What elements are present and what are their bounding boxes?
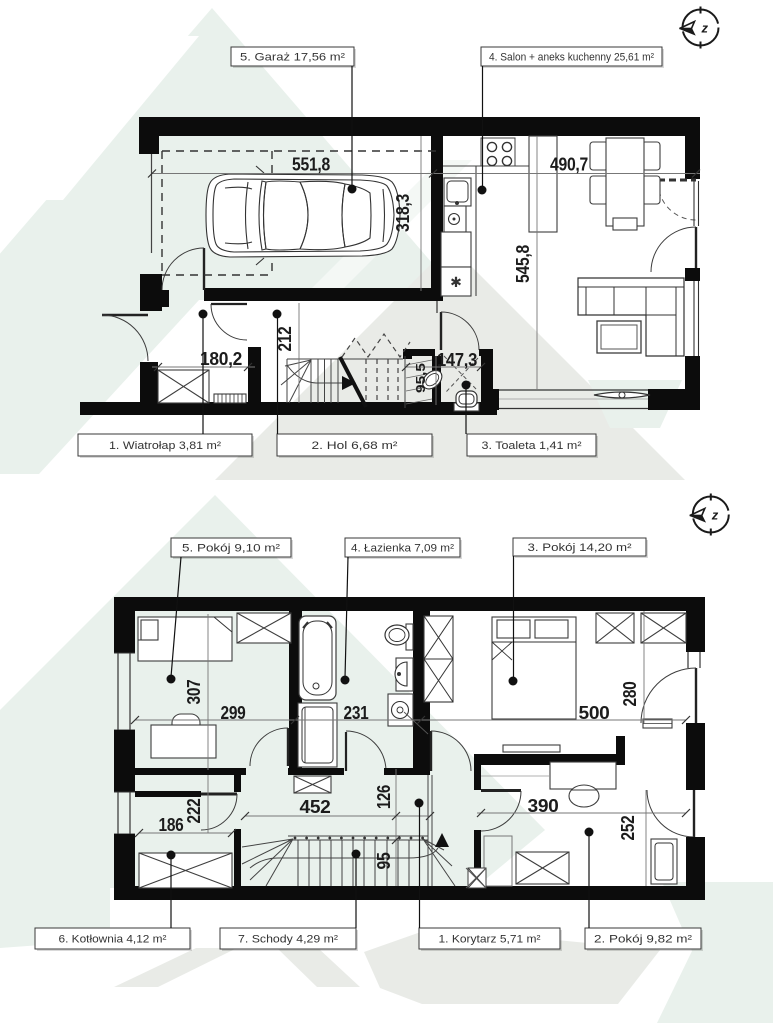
svg-text:2. Hol 6,68 m²: 2. Hol 6,68 m² [312,440,398,452]
svg-text:307: 307 [184,679,204,704]
svg-text:280: 280 [620,681,640,706]
svg-text:222: 222 [184,798,204,823]
svg-text:z: z [711,508,719,523]
svg-text:186: 186 [159,815,184,835]
svg-text:3. Pokój 14,20 m²: 3. Pokój 14,20 m² [528,542,632,554]
svg-text:231: 231 [344,703,369,723]
svg-text:500: 500 [579,703,610,723]
svg-text:4. Łazienka 7,09 m²: 4. Łazienka 7,09 m² [351,543,454,555]
svg-text:452: 452 [300,797,331,817]
svg-text:5. Garaż 17,56 m²: 5. Garaż 17,56 m² [240,52,345,64]
svg-text:126: 126 [374,785,394,809]
svg-text:545,8: 545,8 [513,245,533,283]
svg-text:147,3: 147,3 [437,350,477,370]
svg-text:6. Kotłownia 4,12 m²: 6. Kotłownia 4,12 m² [59,934,167,946]
svg-text:✱: ✱ [450,274,462,290]
svg-text:95: 95 [374,852,394,869]
svg-text:1. Wiatrołap 3,81 m²: 1. Wiatrołap 3,81 m² [109,440,221,452]
svg-text:318,3: 318,3 [393,194,413,232]
svg-text:4. Salon + aneks kuchenny 25,6: 4. Salon + aneks kuchenny 25,61 m² [489,52,654,64]
svg-text:3. Toaleta 1,41 m²: 3. Toaleta 1,41 m² [482,440,582,452]
svg-text:5. Pokój 9,10 m²: 5. Pokój 9,10 m² [182,543,280,555]
svg-text:252: 252 [618,815,638,840]
svg-text:95,5: 95,5 [413,363,428,393]
svg-text:z: z [701,21,709,36]
svg-text:2. Pokój 9,82 m²: 2. Pokój 9,82 m² [594,934,692,946]
svg-text:551,8: 551,8 [292,155,330,175]
svg-text:390: 390 [528,796,559,816]
svg-text:1. Korytarz 5,71 m²: 1. Korytarz 5,71 m² [439,934,541,946]
svg-text:490,7: 490,7 [550,155,588,175]
svg-text:180,2: 180,2 [200,349,242,369]
svg-text:7. Schody 4,29 m²: 7. Schody 4,29 m² [238,934,338,946]
svg-text:299: 299 [221,703,246,723]
